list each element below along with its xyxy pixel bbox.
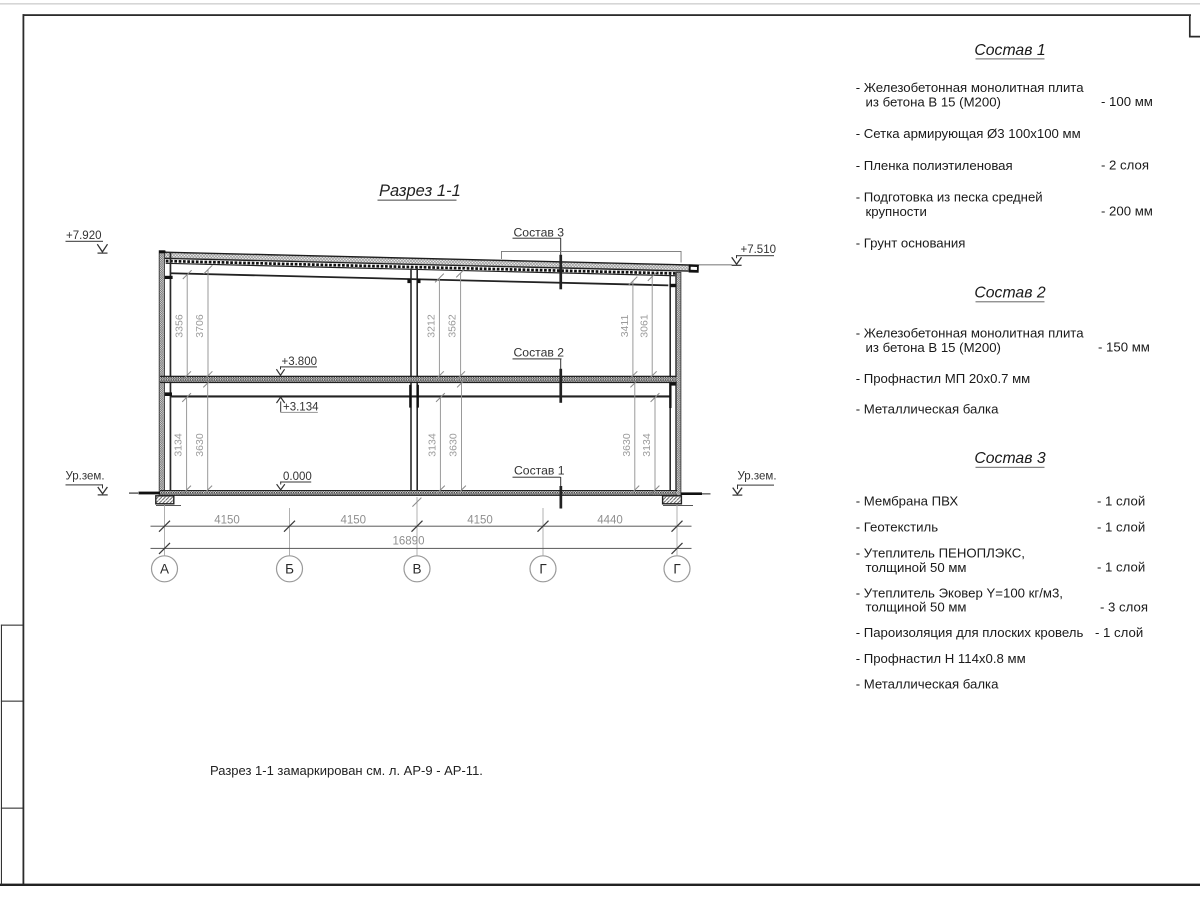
svg-text:3630: 3630 — [194, 433, 206, 457]
svg-text:- Сетка армирующая Ø3 100х100: - Сетка армирующая Ø3 100х100 мм — [856, 126, 1081, 141]
svg-text:- Профнастил Н 114х0.8 мм: - Профнастил Н 114х0.8 мм — [856, 651, 1026, 666]
svg-text:- Мембрана ПВХ: - Мембрана ПВХ — [856, 494, 959, 509]
svg-text:Г: Г — [539, 562, 547, 577]
svg-text:3212: 3212 — [426, 314, 438, 338]
svg-text:Состав 3: Состав 3 — [514, 225, 565, 239]
svg-text:- Геотекстиль: - Геотекстиль — [856, 520, 939, 535]
svg-text:3134: 3134 — [427, 433, 439, 457]
svg-text:0.000: 0.000 — [283, 471, 312, 483]
svg-text:16890: 16890 — [393, 536, 425, 548]
svg-text:- Железобетонная монолитная п: - Железобетонная монолитная плита — [856, 326, 1085, 341]
svg-text:- Утеплитель Эковер Y=100 кг/м: - Утеплитель Эковер Y=100 кг/м3, — [856, 586, 1063, 601]
svg-text:- 1 слой: - 1 слой — [1097, 494, 1145, 509]
svg-text:- Пленка полиэтиленовая: - Пленка полиэтиленовая — [856, 158, 1013, 173]
svg-text:Состав 3: Состав 3 — [974, 450, 1045, 467]
svg-text:4150: 4150 — [214, 515, 240, 527]
svg-text:Состав 2: Состав 2 — [974, 285, 1045, 302]
svg-text:4440: 4440 — [597, 515, 623, 527]
svg-text:3061: 3061 — [638, 314, 650, 338]
svg-text:толщиной 50 мм: толщиной 50 мм — [866, 600, 967, 615]
svg-text:Состав 1: Состав 1 — [974, 42, 1045, 59]
svg-text:+3.800: +3.800 — [282, 356, 318, 368]
svg-text:3706: 3706 — [194, 314, 206, 338]
svg-text:3134: 3134 — [641, 433, 653, 457]
svg-text:А: А — [160, 562, 169, 577]
svg-text:- Пароизоляция для плоских кро: - Пароизоляция для плоских кровель — [856, 625, 1084, 640]
svg-text:3630: 3630 — [621, 433, 633, 457]
svg-text:В: В — [412, 562, 421, 577]
svg-text:- Подготовка из песка средней: - Подготовка из песка средней — [856, 189, 1043, 204]
svg-text:- Железобетонная монолитная п: - Железобетонная монолитная плита — [856, 80, 1085, 95]
svg-text:3134: 3134 — [173, 433, 185, 457]
svg-text:Ур.зем.: Ур.зем. — [66, 471, 105, 483]
svg-text:- 3 слоя: - 3 слоя — [1100, 599, 1148, 614]
svg-text:+7.920: +7.920 — [66, 230, 102, 242]
svg-text:- 2 слоя: - 2 слоя — [1101, 157, 1149, 172]
svg-text:- 1 слой: - 1 слой — [1097, 560, 1145, 575]
svg-text:- Металлическая балка: - Металлическая балка — [856, 677, 999, 692]
svg-text:Разрез 1-1: Разрез 1-1 — [379, 182, 461, 200]
svg-text:+7.510: +7.510 — [741, 244, 777, 256]
svg-text:- 100 мм: - 100 мм — [1101, 94, 1153, 109]
svg-text:- 1 слой: - 1 слой — [1095, 625, 1143, 640]
svg-text:- Металлическая балка: - Металлическая балка — [856, 402, 999, 417]
svg-text:3356: 3356 — [173, 314, 185, 338]
svg-text:Разрез 1-1 замаркирован см. л.: Разрез 1-1 замаркирован см. л. АР-9 - АР… — [210, 763, 483, 778]
svg-text:Состав 1: Состав 1 — [514, 463, 565, 477]
svg-text:Б: Б — [285, 562, 294, 577]
svg-text:- Грунт основания: - Грунт основания — [856, 235, 966, 250]
svg-text:из бетона В 15 (М200): из бетона В 15 (М200) — [866, 94, 1001, 109]
svg-text:4150: 4150 — [467, 515, 493, 527]
svg-text:- Утеплитель ПЕНОПЛЭКС,: - Утеплитель ПЕНОПЛЭКС, — [856, 546, 1025, 561]
svg-text:- 200 мм: - 200 мм — [1101, 204, 1153, 219]
svg-text:4150: 4150 — [341, 515, 367, 527]
svg-text:3630: 3630 — [448, 433, 460, 457]
svg-text:Ур.зем.: Ур.зем. — [738, 471, 777, 483]
svg-text:3562: 3562 — [447, 314, 459, 338]
svg-text:из бетона В 15 (М200): из бетона В 15 (М200) — [866, 340, 1001, 355]
svg-text:Г: Г — [673, 562, 681, 577]
svg-text:толщиной 50 мм: толщиной 50 мм — [866, 560, 967, 575]
svg-text:крупности: крупности — [866, 204, 927, 219]
svg-text:3411: 3411 — [619, 315, 631, 338]
svg-text:- 1 слой: - 1 слой — [1097, 520, 1145, 535]
svg-text:- Профнастил МП 20х0.7 мм: - Профнастил МП 20х0.7 мм — [856, 371, 1031, 386]
svg-text:Состав 2: Состав 2 — [514, 345, 565, 359]
svg-text:- 150 мм: - 150 мм — [1098, 340, 1150, 355]
